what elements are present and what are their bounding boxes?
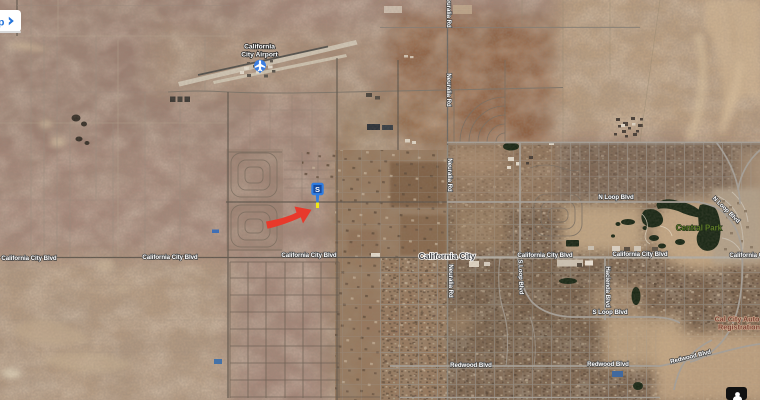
svg-text:Neuralia Rd: Neuralia Rd — [445, 73, 452, 107]
svg-text:S: S — [315, 185, 320, 194]
svg-text:California City Blvd: California City Blvd — [142, 254, 198, 261]
svg-text:Central Park: Central Park — [676, 224, 723, 233]
svg-text:S Loop Blvd: S Loop Blvd — [516, 259, 524, 295]
svg-text:California City Blvd: California City Blvd — [612, 251, 668, 258]
svg-text:p: p — [0, 17, 4, 29]
svg-text:Redwood Blvd: Redwood Blvd — [587, 361, 629, 368]
svg-text:Hacienda Blvd: Hacienda Blvd — [604, 266, 611, 308]
svg-text:Registration: Registration — [718, 323, 760, 332]
svg-text:N Loop Blvd: N Loop Blvd — [598, 194, 634, 201]
svg-text:California City: California City — [419, 251, 476, 261]
svg-text:S Loop Blvd: S Loop Blvd — [593, 309, 628, 316]
svg-text:Redwood Blvd: Redwood Blvd — [450, 362, 492, 369]
svg-text:California City Blvd: California City Blvd — [1, 255, 57, 262]
svg-text:Neuralia Rd: Neuralia Rd — [447, 264, 454, 298]
svg-text:California City Blvd: California City Blvd — [729, 252, 760, 259]
svg-text:California City Blvd: California City Blvd — [281, 252, 337, 259]
svg-text:California City Blvd: California City Blvd — [517, 252, 573, 259]
svg-text:City Airport: City Airport — [241, 52, 278, 59]
svg-text:Neuralia Rd: Neuralia Rd — [445, 0, 452, 28]
svg-text:Neuralia Rd: Neuralia Rd — [446, 158, 453, 192]
svg-text:California: California — [244, 44, 275, 51]
